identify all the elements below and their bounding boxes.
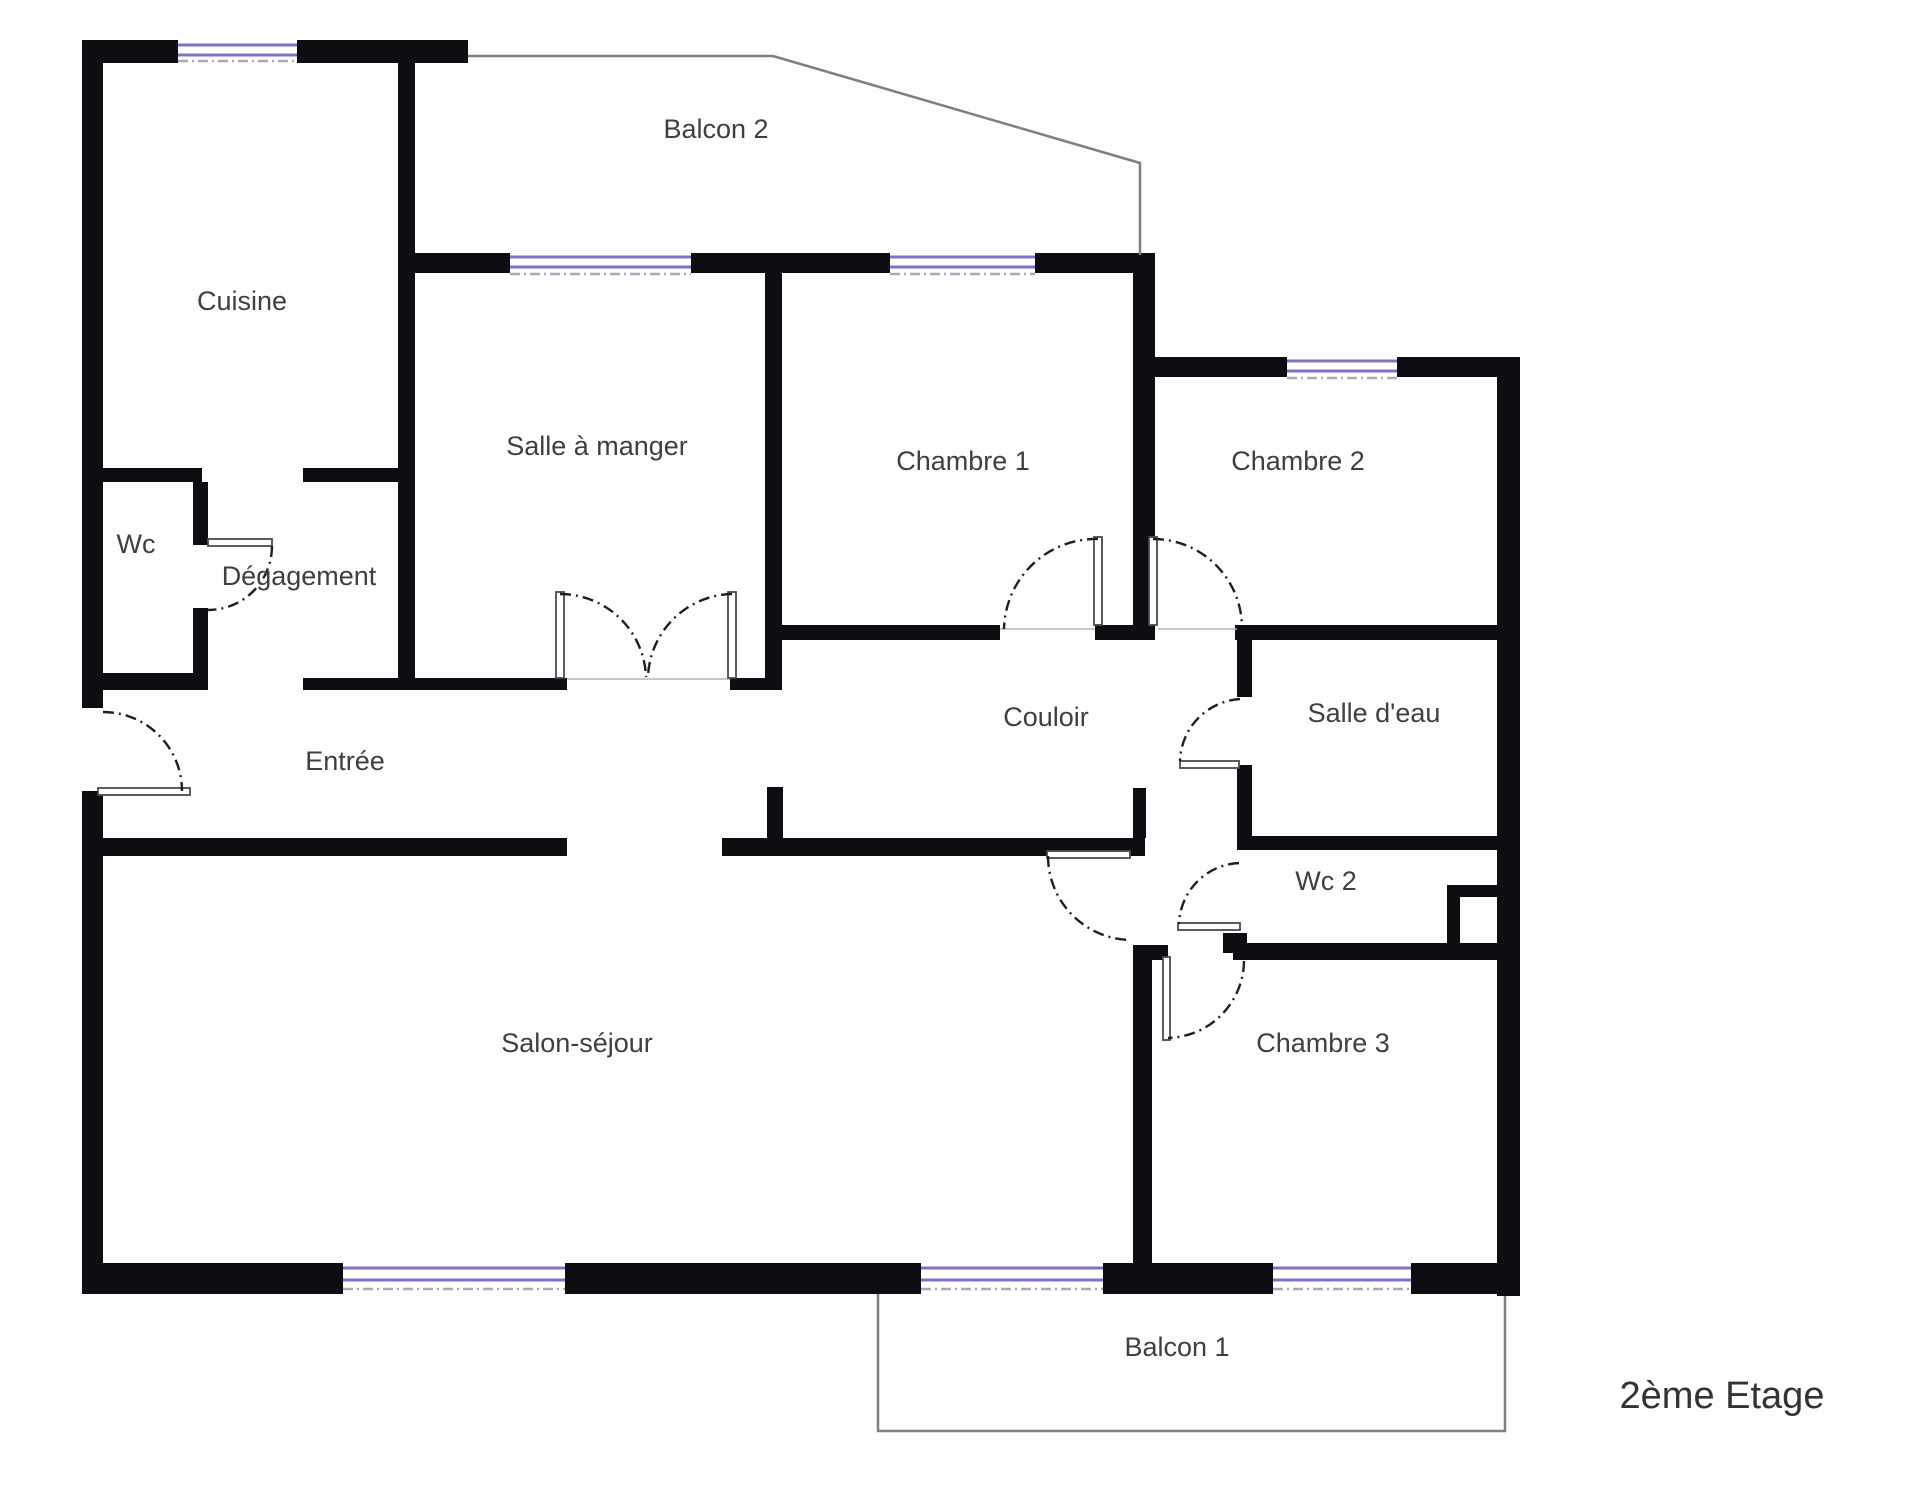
- room-labels: Cuisine Balcon 2 Salle à manger Chambre …: [117, 114, 1825, 1417]
- window-cuisine: [178, 40, 297, 63]
- room-label-salle-a-manger: Salle à manger: [506, 431, 688, 461]
- window-salle-a-manger: [510, 253, 691, 274]
- wall-sam-ch1-divider: [765, 273, 782, 690]
- room-label-balcon2: Balcon 2: [663, 114, 768, 144]
- room-label-chambre3: Chambre 3: [1256, 1028, 1390, 1058]
- door-wc2: [1178, 863, 1240, 930]
- wall-wc2-bottom: [1233, 943, 1520, 960]
- room-label-chambre1: Chambre 1: [896, 446, 1030, 476]
- door-swing-arc: [1153, 539, 1242, 626]
- room-label-salon: Salon-séjour: [501, 1028, 653, 1058]
- wall-stub-couloir-end: [1133, 788, 1146, 838]
- window-salon-1: [343, 1263, 565, 1294]
- wall-sde-left-upper: [1237, 640, 1252, 697]
- room-label-wc2: Wc 2: [1295, 866, 1357, 896]
- wall-sde-bottom: [1249, 836, 1520, 850]
- door-chambre3: [1163, 957, 1244, 1040]
- door-swing-arc: [648, 594, 732, 677]
- wall-wc-right-upper: [193, 482, 208, 545]
- floor-plan: Cuisine Balcon 2 Salle à manger Chambre …: [0, 0, 1920, 1488]
- room-label-balcon1: Balcon 1: [1124, 1332, 1229, 1362]
- door-swing-arc: [1179, 863, 1239, 924]
- room-label-salle-deau: Salle d'eau: [1308, 698, 1441, 728]
- wall-salon-ch3-divider: [1133, 945, 1152, 1294]
- window-chambre2: [1287, 357, 1397, 378]
- doors: [98, 537, 1244, 1040]
- door-swing-arc: [1168, 961, 1244, 1038]
- room-label-couloir: Couloir: [1003, 702, 1089, 732]
- balcon2-outline: [468, 56, 1140, 255]
- door-leaf: [98, 788, 190, 795]
- room-label-cuisine: Cuisine: [197, 286, 287, 316]
- door-swing-arc: [1004, 539, 1098, 629]
- room-label-degagement: Dégagement: [222, 561, 377, 591]
- window-chambre3: [1273, 1263, 1411, 1294]
- door-chambre2: [1149, 537, 1242, 626]
- window-salon-2: [921, 1263, 1103, 1294]
- door-leaf: [728, 592, 736, 678]
- wall-left-upper: [82, 40, 103, 708]
- wall-wc-bottom: [82, 673, 208, 690]
- windows: [178, 40, 1411, 1294]
- door-leaf: [1047, 851, 1130, 858]
- door-swing-arc: [103, 712, 182, 791]
- window-chambre1: [890, 253, 1035, 274]
- wall-right: [1497, 357, 1520, 1296]
- door-leaf: [556, 592, 564, 678]
- wall-wc-right-lower: [193, 608, 208, 673]
- walls: [82, 40, 1520, 1296]
- door-salle-deau: [1180, 699, 1240, 768]
- wall-wc-top: [82, 468, 202, 482]
- floor-plan-canvas: Cuisine Balcon 2 Salle à manger Chambre …: [0, 0, 1920, 1488]
- door-leaf: [1178, 923, 1240, 930]
- door-entrance: [98, 712, 190, 795]
- door-leaf: [1163, 957, 1170, 1040]
- wall-ch2-bottom: [1235, 625, 1520, 640]
- wall-cuisine-right: [398, 63, 415, 690]
- door-salle-a-manger-double: [556, 592, 736, 678]
- door-leaf: [1180, 761, 1239, 768]
- wall-ch1-bottom-left: [782, 625, 1000, 640]
- wall-sam-bottom-left: [303, 678, 567, 690]
- room-label-chambre2: Chambre 2: [1231, 446, 1365, 476]
- room-label-wc: Wc: [117, 529, 156, 559]
- wall-duct-left: [1447, 885, 1460, 943]
- room-label-entree: Entrée: [305, 746, 385, 776]
- floor-title: 2ème Etage: [1620, 1375, 1825, 1417]
- wall-stub-couloir-left: [767, 787, 783, 838]
- door-chambre1: [1004, 537, 1102, 629]
- door-leaf: [1094, 537, 1102, 625]
- balcon1-outline: [878, 1294, 1505, 1431]
- wall-left-lower: [82, 791, 103, 1294]
- wall-entree-bottom: [82, 838, 567, 856]
- door-swing-arc: [1048, 856, 1131, 940]
- wall-cuisine-bottom: [303, 468, 415, 482]
- door-swing-arc: [1180, 699, 1240, 761]
- door-leaf: [1149, 537, 1157, 625]
- window-pane: [178, 40, 297, 63]
- door-salon: [1047, 851, 1131, 940]
- door-leaf: [208, 539, 272, 546]
- door-swing-arc: [560, 594, 646, 677]
